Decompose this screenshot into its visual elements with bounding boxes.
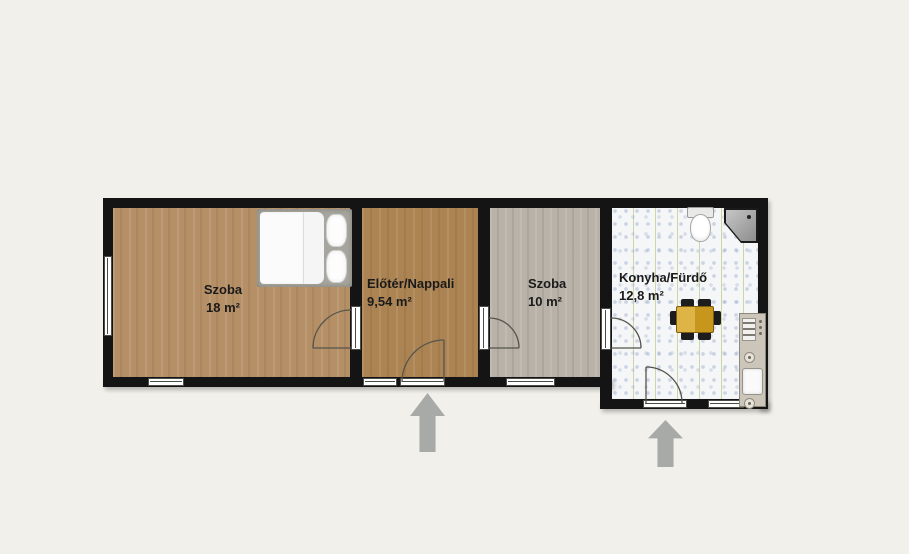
chair	[713, 311, 721, 325]
window-bottom-szoba10	[506, 378, 555, 386]
sink	[742, 368, 763, 395]
main-entrance-arrow	[410, 393, 445, 452]
toilet-bowl	[690, 214, 711, 242]
room-area: 10 m²	[528, 293, 566, 311]
stove-knob	[759, 320, 762, 323]
room-name: Szoba	[173, 281, 273, 299]
door-frame-konyha-entrance	[643, 400, 687, 408]
room-area: 18 m²	[173, 299, 273, 317]
door-frame-szoba10	[479, 306, 489, 350]
room-label-konyha: Konyha/Fürdő 12,8 m²	[619, 269, 707, 305]
floor-plan: Szoba 18 m² Előtér/Nappali 9,54 m² Szoba…	[0, 0, 909, 554]
stove-knob	[759, 332, 762, 335]
room-label-szoba10: Szoba 10 m²	[528, 275, 566, 311]
window-bottom-szoba18	[148, 378, 184, 386]
room-label-szoba18: Szoba 18 m²	[173, 281, 273, 317]
toilet	[687, 207, 714, 243]
stove-knob	[759, 326, 762, 329]
wall-top	[103, 198, 768, 208]
door-frame-konyha	[601, 308, 611, 350]
stove-grill	[742, 318, 756, 341]
burner	[744, 398, 755, 409]
bed-duvet-fold	[303, 212, 324, 284]
bed-pillow	[326, 214, 347, 247]
bed-duvet	[260, 212, 306, 284]
room-name: Konyha/Fürdő	[619, 269, 707, 287]
dining-table	[676, 306, 714, 333]
burner	[744, 352, 755, 363]
door-frame-szoba18	[351, 306, 361, 350]
room-name: Szoba	[528, 275, 566, 293]
door-frame-main-entrance	[400, 378, 445, 386]
bed	[257, 209, 352, 287]
room-area: 12,8 m²	[619, 287, 707, 305]
wall-divider-eloter-szoba10	[478, 208, 490, 377]
kitchen-entrance-arrow	[648, 420, 683, 467]
bed-pillow	[326, 250, 347, 283]
kitchen-unit	[739, 313, 766, 407]
window-bottom-eloter	[363, 378, 397, 386]
room-name: Előtér/Nappali	[367, 275, 454, 293]
window-left-szoba18	[104, 256, 112, 336]
room-area: 9,54 m²	[367, 293, 454, 311]
shower-drain	[747, 215, 751, 219]
room-label-eloter: Előtér/Nappali 9,54 m²	[367, 275, 454, 311]
